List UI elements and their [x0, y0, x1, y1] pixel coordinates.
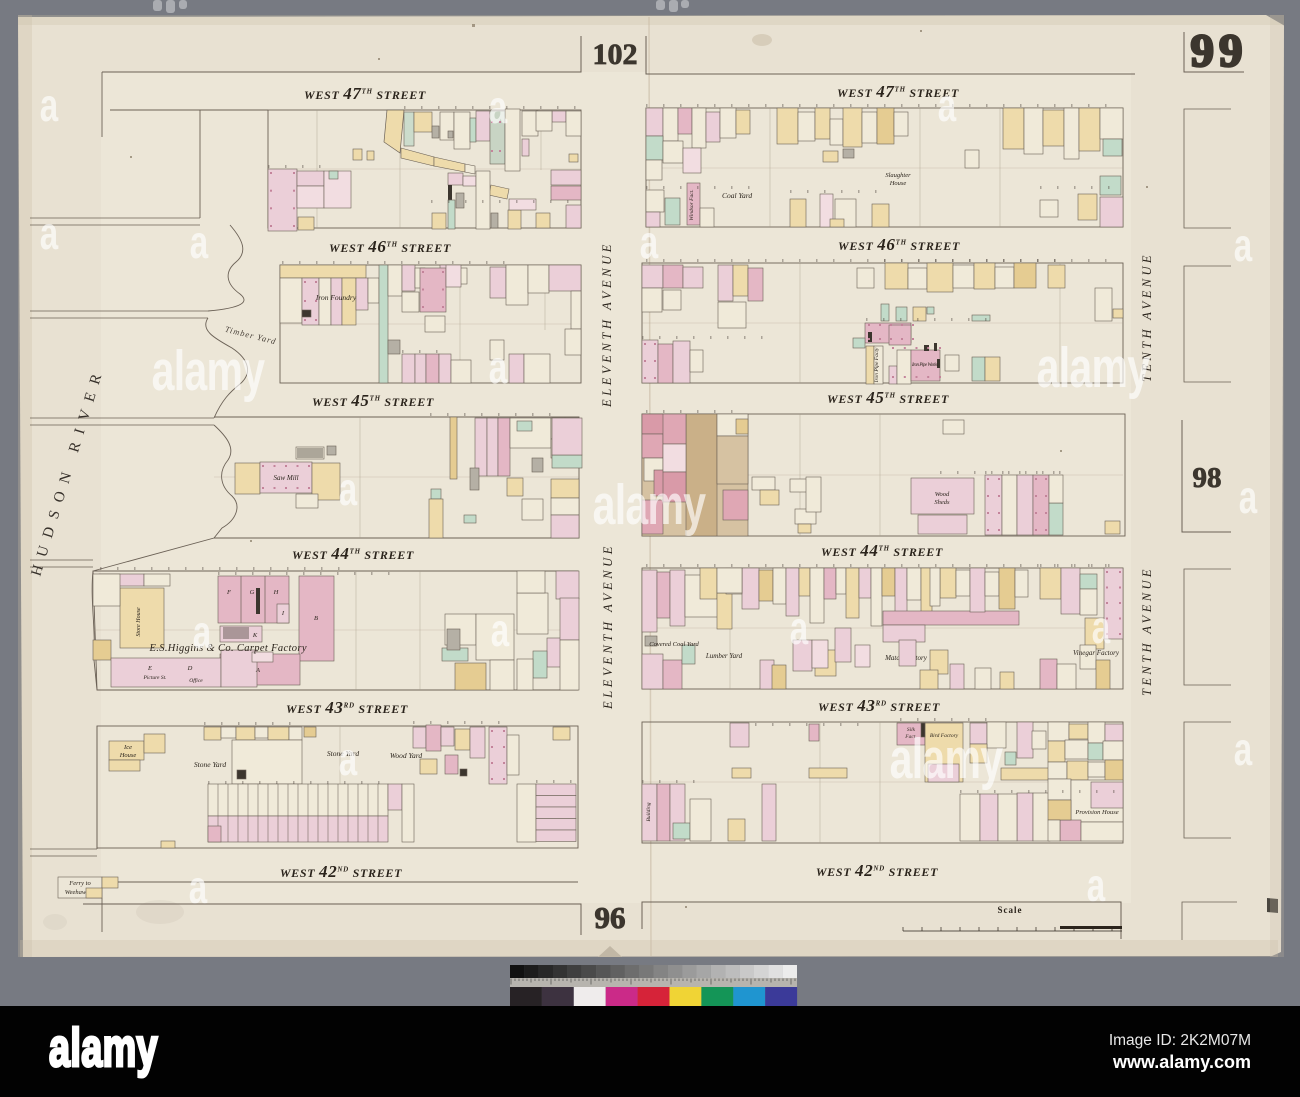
svg-text:a: a: [1239, 473, 1258, 523]
svg-text:alamy: alamy: [890, 726, 1004, 790]
svg-text:Ice: Ice: [123, 744, 132, 751]
svg-text:Provision House: Provision House: [1074, 809, 1118, 816]
svg-text:Wood: Wood: [935, 491, 950, 498]
svg-text:www.alamy.com: www.alamy.com: [1112, 1052, 1251, 1072]
svg-text:House: House: [119, 752, 137, 759]
svg-text:House: House: [889, 180, 907, 187]
svg-text:a: a: [491, 606, 510, 656]
svg-text:K: K: [252, 632, 258, 639]
svg-text:Iron Pipe Works: Iron Pipe Works: [911, 363, 938, 368]
svg-text:Iron Foundry: Iron Foundry: [315, 293, 357, 302]
svg-text:alamy: alamy: [152, 338, 266, 402]
svg-text:Windsor Fact.: Windsor Fact.: [689, 189, 695, 220]
svg-text:Lumber Yard: Lumber Yard: [705, 652, 743, 660]
svg-text:alamy: alamy: [1037, 335, 1151, 399]
svg-text:ELEVENTH AVENUE: ELEVENTH AVENUE: [600, 241, 614, 408]
svg-text:98: 98: [1193, 462, 1222, 494]
svg-text:a: a: [640, 218, 659, 268]
svg-text:D: D: [187, 665, 193, 672]
svg-text:96: 96: [595, 900, 626, 935]
svg-text:ELEVENTH AVENUE: ELEVENTH AVENUE: [601, 543, 615, 710]
svg-text:102: 102: [593, 38, 638, 71]
svg-text:Sheds: Sheds: [934, 499, 950, 506]
svg-text:99: 99: [1191, 25, 1248, 77]
svg-text:a: a: [790, 604, 809, 654]
svg-text:Coal Yard: Coal Yard: [722, 191, 752, 200]
svg-text:a: a: [489, 83, 508, 133]
svg-text:G: G: [250, 589, 255, 596]
svg-text:Stone Yard: Stone Yard: [194, 760, 226, 769]
svg-text:a: a: [1234, 221, 1253, 271]
svg-text:Building: Building: [646, 802, 652, 821]
svg-text:Office: Office: [189, 677, 203, 684]
svg-text:Scale: Scale: [998, 905, 1023, 915]
svg-text:a: a: [339, 465, 358, 515]
svg-text:a: a: [339, 735, 358, 785]
svg-text:a: a: [1234, 725, 1253, 775]
svg-text:TENTH AVENUE: TENTH AVENUE: [1140, 566, 1154, 696]
svg-text:Iron Pipe Facty: Iron Pipe Facty: [874, 347, 880, 383]
svg-text:Wood Yard: Wood Yard: [390, 751, 423, 760]
svg-text:a: a: [40, 81, 59, 131]
svg-text:a: a: [1087, 861, 1106, 911]
svg-text:a: a: [193, 608, 212, 658]
svg-text:a: a: [938, 81, 957, 131]
svg-text:B: B: [314, 615, 318, 622]
svg-text:A: A: [255, 667, 260, 674]
svg-text:alamy: alamy: [593, 472, 707, 536]
svg-text:Store House: Store House: [136, 607, 142, 637]
svg-text:Ferry to: Ferry to: [68, 880, 91, 887]
svg-text:alamy: alamy: [49, 1017, 158, 1077]
svg-text:a: a: [489, 343, 508, 393]
svg-text:a: a: [1092, 603, 1111, 653]
svg-text:E: E: [147, 665, 152, 672]
svg-text:a: a: [189, 863, 208, 913]
svg-text:Saw Mill: Saw Mill: [273, 474, 298, 482]
svg-text:a: a: [190, 218, 209, 268]
svg-text:H: H: [273, 589, 279, 596]
svg-text:Image ID: 2K2M07M: Image ID: 2K2M07M: [1109, 1032, 1251, 1049]
svg-text:a: a: [40, 209, 59, 259]
svg-text:E.S.Higgins & Co. Carpet Facto: E.S.Higgins & Co. Carpet Factory: [149, 643, 307, 654]
svg-text:Picture St.: Picture St.: [142, 675, 166, 681]
svg-text:Slaughter: Slaughter: [885, 172, 911, 179]
svg-text:Covered Coal Yard: Covered Coal Yard: [649, 641, 699, 648]
